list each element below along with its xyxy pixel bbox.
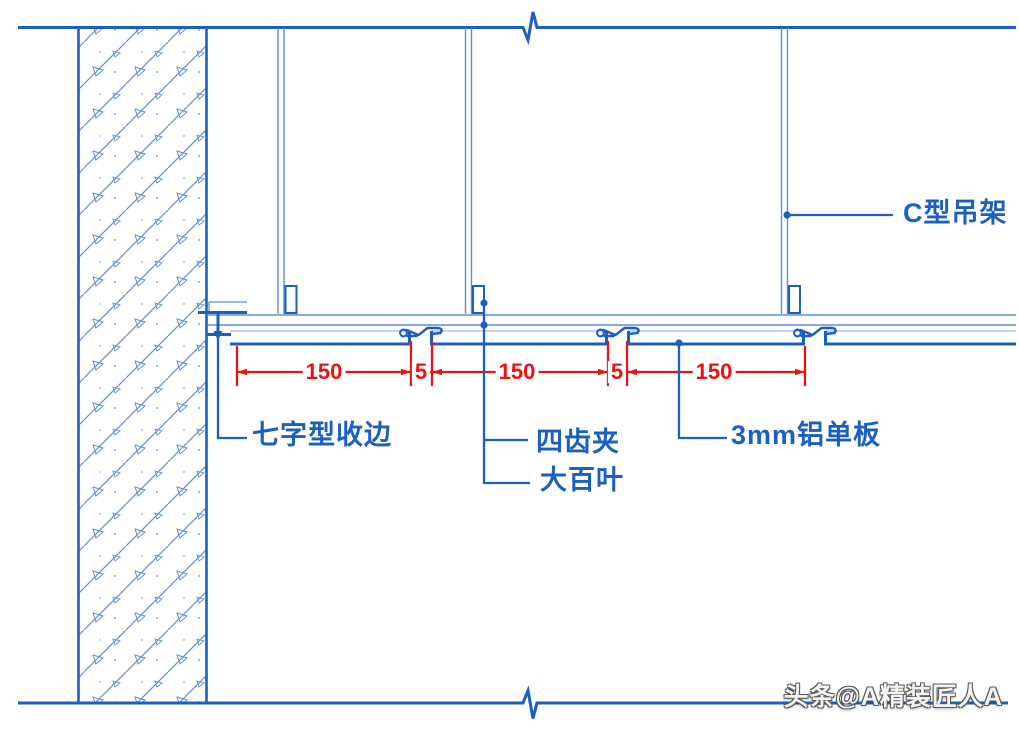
- wall-section: [79, 27, 207, 703]
- panel-clip-3: [794, 328, 836, 336]
- c-hanger-2: [466, 28, 485, 314]
- panel-clip-2: [597, 328, 639, 336]
- ceiling-detail-drawing: C型吊架 七字型收边 四齿夹 大百叶 3mm铝单板 150 5 150 5 15…: [0, 0, 1019, 731]
- dimension-value-3: 150: [496, 361, 539, 383]
- louver-label: 大百叶: [540, 466, 624, 496]
- alum-panel-label: 3mm铝单板: [731, 421, 881, 451]
- tooth-clip-label: 四齿夹: [536, 428, 620, 458]
- edge-trim-label: 七字型收边: [252, 421, 392, 451]
- c-hanger-label: C型吊架: [903, 199, 1008, 229]
- c-hanger-1: [278, 28, 297, 314]
- clip-louver-leader: [480, 299, 530, 483]
- alum-panel-leader: [675, 339, 727, 438]
- panel-clip-1: [400, 328, 442, 336]
- c-hanger-leader: [783, 211, 893, 218]
- dimension-value-5: 150: [693, 361, 736, 383]
- dimension-value-2: 5: [412, 361, 430, 383]
- dimension-value-4: 5: [608, 361, 626, 383]
- c-hanger-3: [782, 28, 801, 314]
- dimension-value-1: 150: [303, 361, 346, 383]
- carrier-rails: [207, 315, 1016, 325]
- watermark-text: 头条@A精装匠人A: [784, 677, 1004, 713]
- edge-trim-leader: [218, 338, 247, 438]
- ceiling-panels: [230, 331, 1016, 344]
